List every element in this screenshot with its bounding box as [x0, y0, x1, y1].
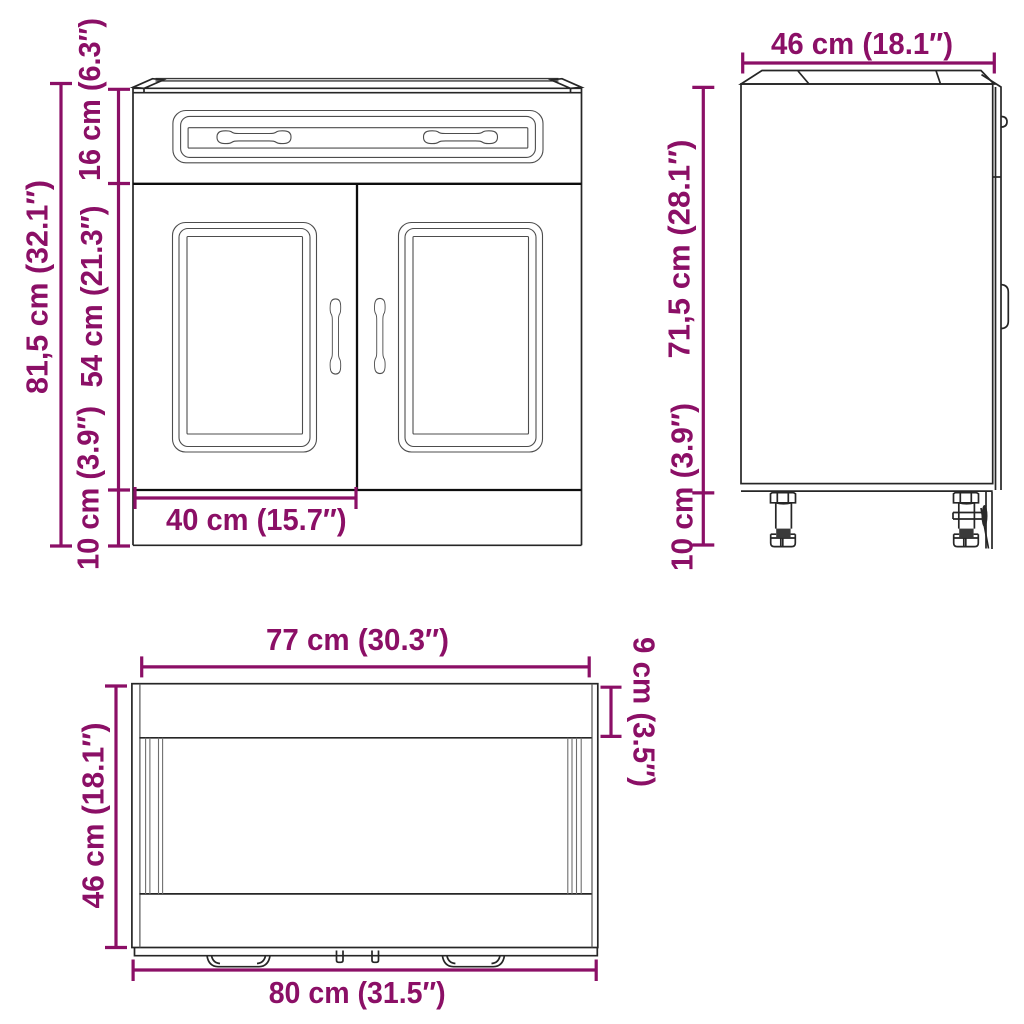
svg-text:46 cm (18.1″): 46 cm (18.1″): [771, 26, 953, 61]
svg-text:16 cm (6.3″): 16 cm (6.3″): [72, 18, 107, 181]
svg-text:46 cm (18.1″): 46 cm (18.1″): [76, 723, 111, 909]
svg-text:10 cm (3.9″): 10 cm (3.9″): [665, 403, 700, 571]
svg-text:77 cm (30.3″): 77 cm (30.3″): [266, 622, 449, 657]
svg-text:40 cm (15.7″): 40 cm (15.7″): [166, 502, 347, 537]
svg-text:80 cm (31.5″): 80 cm (31.5″): [269, 975, 446, 1010]
svg-text:81,5 cm (32.1″): 81,5 cm (32.1″): [20, 180, 55, 394]
svg-text:71,5 cm (28.1″): 71,5 cm (28.1″): [662, 140, 697, 359]
svg-text:10 cm (3.9″): 10 cm (3.9″): [71, 406, 106, 570]
svg-text:54 cm (21.3″): 54 cm (21.3″): [74, 206, 109, 388]
svg-text:9 cm (3.5″): 9 cm (3.5″): [627, 637, 662, 787]
